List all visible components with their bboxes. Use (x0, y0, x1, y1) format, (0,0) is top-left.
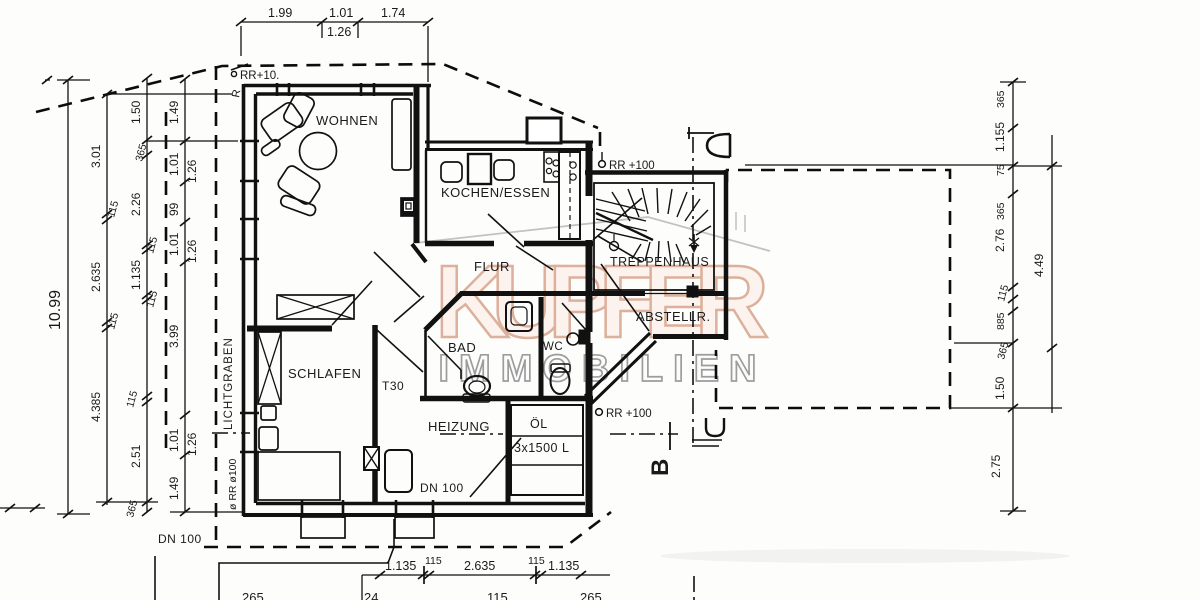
svg-text:1.135: 1.135 (129, 260, 143, 290)
svg-text:WOHNEN: WOHNEN (316, 113, 378, 128)
svg-text:BAD: BAD (448, 340, 476, 355)
svg-text:LICHTGRABEN: LICHTGRABEN (223, 337, 235, 430)
svg-text:1.50: 1.50 (129, 100, 143, 124)
svg-text:2.635: 2.635 (89, 262, 103, 292)
svg-text:3.99: 3.99 (167, 324, 181, 348)
svg-text:2.51: 2.51 (129, 444, 143, 468)
svg-text:1.135: 1.135 (548, 559, 579, 573)
svg-text:115: 115 (487, 590, 508, 600)
svg-text:RR +100: RR +100 (609, 160, 655, 172)
svg-text:10.99: 10.99 (47, 290, 64, 330)
svg-text:1.01: 1.01 (329, 6, 353, 20)
svg-text:1.26: 1.26 (185, 159, 199, 183)
svg-text:RR+10.: RR+10. (240, 70, 279, 82)
svg-text:4.49: 4.49 (1032, 253, 1046, 277)
svg-text:1.26: 1.26 (327, 25, 351, 39)
svg-text:365: 365 (995, 202, 1007, 220)
svg-text:B: B (647, 459, 674, 476)
svg-text:KOCHEN/ESSEN: KOCHEN/ESSEN (441, 185, 550, 200)
svg-text:ø RR ø100: ø RR ø100 (227, 458, 239, 510)
svg-text:265: 265 (242, 590, 264, 600)
svg-text:99: 99 (167, 202, 181, 216)
svg-text:1.49: 1.49 (167, 476, 181, 500)
svg-text:SCHLAFEN: SCHLAFEN (288, 366, 361, 381)
svg-text:365: 365 (995, 90, 1007, 108)
svg-text:T30: T30 (382, 379, 404, 393)
svg-text:DN 100: DN 100 (158, 532, 202, 546)
svg-text:115: 115 (425, 555, 442, 567)
svg-text:1.99: 1.99 (268, 6, 292, 20)
svg-text:4.385: 4.385 (89, 392, 103, 422)
svg-text:75: 75 (995, 164, 1007, 176)
svg-text:1.50: 1.50 (993, 376, 1007, 400)
svg-text:3x1500 L: 3x1500 L (514, 441, 569, 455)
svg-text:3.01: 3.01 (89, 144, 103, 168)
svg-text:1.49: 1.49 (167, 100, 181, 124)
svg-text:2.26: 2.26 (129, 192, 143, 216)
svg-text:1.01: 1.01 (167, 428, 181, 452)
svg-text:24: 24 (364, 590, 378, 600)
svg-text:2.75: 2.75 (989, 454, 1003, 478)
svg-text:1.26: 1.26 (185, 239, 199, 263)
svg-text:885: 885 (995, 312, 1007, 330)
svg-text:RR +100: RR +100 (606, 408, 652, 420)
svg-text:1.26: 1.26 (185, 432, 199, 456)
svg-text:ABSTELLR.: ABSTELLR. (636, 309, 711, 324)
svg-text:1.74: 1.74 (381, 6, 405, 20)
svg-text:1.155: 1.155 (993, 122, 1007, 152)
svg-text:265: 265 (580, 590, 602, 600)
svg-text:ÖL: ÖL (530, 417, 548, 431)
svg-text:DN 100: DN 100 (420, 481, 464, 495)
svg-text:1.135: 1.135 (385, 559, 416, 573)
svg-text:115: 115 (528, 555, 545, 567)
svg-text:1.01: 1.01 (167, 232, 181, 256)
svg-text:WC: WC (543, 341, 563, 353)
svg-text:1.01: 1.01 (167, 152, 181, 176)
svg-text:2.635: 2.635 (464, 559, 495, 573)
svg-text:2.76: 2.76 (993, 228, 1007, 252)
svg-text:FLUR: FLUR (474, 259, 510, 274)
svg-text:HEIZUNG: HEIZUNG (428, 419, 490, 434)
svg-text:TREPPENHAUS: TREPPENHAUS (610, 255, 709, 269)
